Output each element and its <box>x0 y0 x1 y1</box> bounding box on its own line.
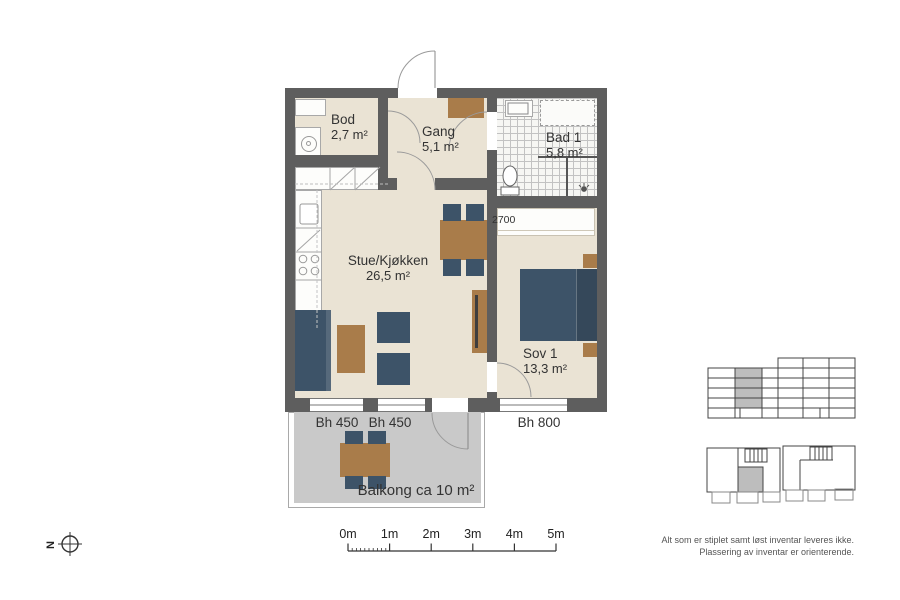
scale-label: 2m <box>416 527 446 541</box>
balcony-table <box>340 443 390 477</box>
hall-bench <box>448 98 484 118</box>
scale-label: 4m <box>499 527 529 541</box>
floor-plan-page: N Bod 2,7 m² Gang 5,1 m² Bad 1 5,8 m² <box>0 0 900 600</box>
room-name: Gang <box>422 124 459 139</box>
disclaimer-text: Alt som er stiplet samt løst inventar le… <box>661 535 854 558</box>
plan-unit-highlight <box>738 467 763 492</box>
stairwell-icon <box>745 449 767 462</box>
wall-left <box>285 88 295 412</box>
balcony-chair <box>345 431 363 444</box>
north-label: N <box>45 541 57 549</box>
wall-gang-stue <box>388 178 397 190</box>
armchair <box>377 353 410 385</box>
room-label-bod: Bod 2,7 m² <box>331 112 368 142</box>
wall-top <box>285 88 398 98</box>
nightstand <box>583 254 597 268</box>
room-label-bad: Bad 1 5,8 m² <box>546 130 583 160</box>
entrance-door-opening <box>398 88 437 98</box>
bathroom-sink <box>505 100 533 117</box>
wall-right <box>597 88 607 412</box>
scale-label: 3m <box>458 527 488 541</box>
room-area: 26,5 m² <box>337 268 439 283</box>
nightstand <box>583 343 597 357</box>
wall-gang-stue <box>435 178 487 190</box>
window-living-1 <box>310 398 363 412</box>
coffee-table <box>337 325 365 373</box>
room-area: 5,8 m² <box>546 145 583 160</box>
armchair <box>377 312 410 343</box>
room-name: Sov 1 <box>523 346 567 361</box>
dining-chair <box>466 259 484 276</box>
wall-gang-bad <box>487 98 497 112</box>
wall-bad-sov <box>497 196 597 208</box>
wall-bottom <box>468 398 500 412</box>
kitchen-counter-top <box>295 167 388 190</box>
entrance-door-arc <box>398 51 435 88</box>
room-label-balkong: Balkong ca 10 m² <box>340 483 492 498</box>
dimension-2700: 2700 <box>492 213 515 228</box>
room-label-gang: Gang 5,1 m² <box>422 124 459 154</box>
scale-label: 1m <box>375 527 405 541</box>
window-living-2 <box>378 398 425 412</box>
wardrobe-front-line <box>498 230 594 231</box>
wall-bottom <box>285 398 310 412</box>
storage-shelf <box>295 99 326 116</box>
balcony-chair <box>368 431 386 444</box>
wall-stue-sov <box>487 150 497 362</box>
window-sill-label: Bh 450 <box>363 415 417 430</box>
window-sill-label: Bh 800 <box>510 415 568 430</box>
scale-bar <box>348 544 556 552</box>
disclaimer-line-1: Alt som er stiplet samt løst inventar le… <box>661 535 854 547</box>
wall-bottom <box>425 398 432 412</box>
stairwell-icon <box>810 447 832 460</box>
window-sill-label: Bh 450 <box>310 415 364 430</box>
wall-bottom <box>363 398 378 412</box>
room-name: Stue/Kjøkken <box>337 253 439 268</box>
bathroom-cabinet <box>540 100 595 126</box>
room-area: 2,7 m² <box>331 127 368 142</box>
room-name: Bad 1 <box>546 130 583 145</box>
wall-bod-gang <box>378 98 388 190</box>
room-label-stue: Stue/Kjøkken 26,5 m² <box>337 253 439 283</box>
wall-stue-sov <box>487 392 497 398</box>
kitchen-counter-left <box>295 190 322 330</box>
facade-unit-highlight <box>735 368 762 408</box>
dining-table <box>440 220 487 260</box>
sofa <box>293 310 331 391</box>
washer-drum-icon <box>301 136 317 152</box>
wall-bod-kitchen <box>295 155 378 167</box>
building-plan-key-diagram <box>707 446 855 503</box>
wall-top <box>437 88 607 98</box>
balcony-door-opening <box>432 398 468 412</box>
dining-chair <box>466 204 484 221</box>
scale-label: 0m <box>333 527 363 541</box>
room-name: Bod <box>331 112 368 127</box>
scale-label: 5m <box>541 527 571 541</box>
room-area: 5,1 m² <box>422 139 459 154</box>
dining-chair <box>443 204 461 221</box>
tv-icon <box>475 295 478 348</box>
north-compass-icon: N <box>45 532 82 556</box>
room-label-sov: Sov 1 13,3 m² <box>523 346 567 376</box>
washing-machine <box>295 127 321 157</box>
disclaimer-line-2: Plassering av inventar er orienterende. <box>661 547 854 559</box>
bed-headboard <box>576 269 597 341</box>
window-bedroom <box>500 398 567 412</box>
wall-bottom <box>567 398 607 412</box>
building-facade-diagram <box>708 358 855 418</box>
bed <box>520 269 597 341</box>
dining-chair <box>443 259 461 276</box>
room-area: 13,3 m² <box>523 361 567 376</box>
